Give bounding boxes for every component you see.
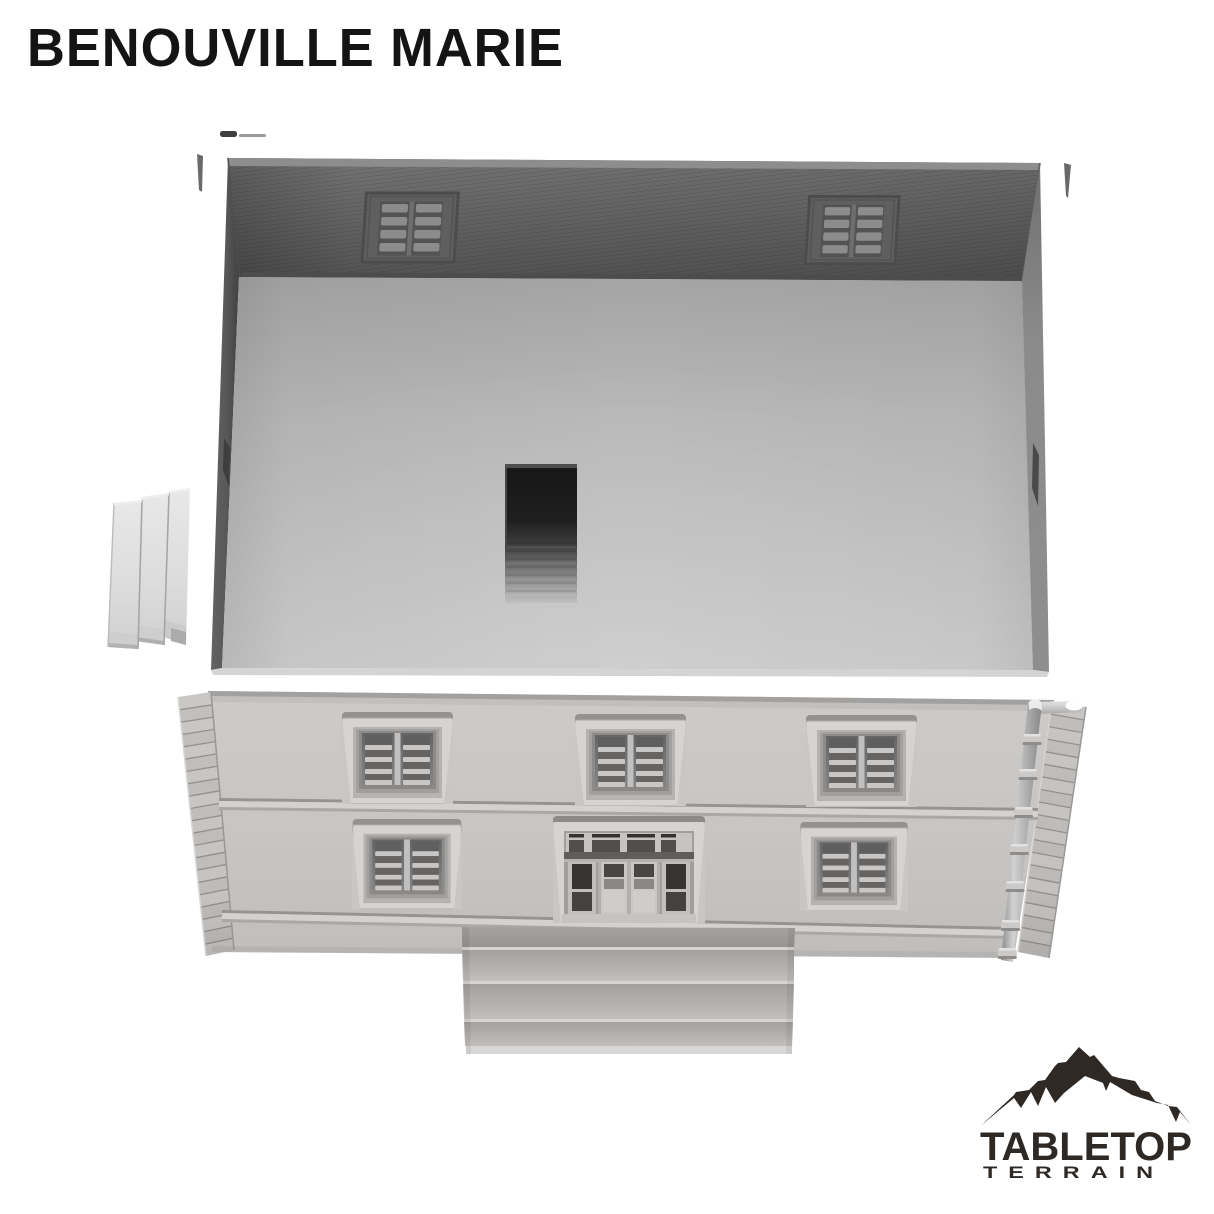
svg-text:TERRAIN: TERRAIN xyxy=(983,1163,1164,1182)
svg-text:BENOUVILLE MARIE: BENOUVILLE MARIE xyxy=(27,18,564,78)
